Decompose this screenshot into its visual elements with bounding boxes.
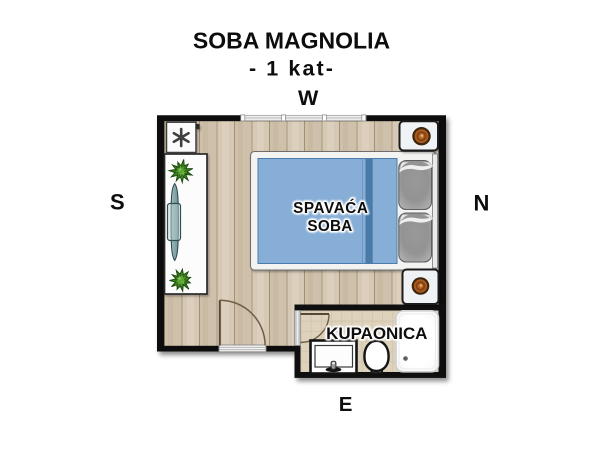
- svg-text:S: S: [110, 190, 125, 215]
- svg-text:SOBA: SOBA: [307, 218, 352, 235]
- svg-text:N: N: [473, 191, 489, 216]
- svg-text:KUPAONICA: KUPAONICA: [326, 324, 427, 343]
- svg-text:SOBA MAGNOLIA: SOBA MAGNOLIA: [193, 27, 390, 53]
- svg-text:SPAVAĆA: SPAVAĆA: [293, 199, 368, 217]
- svg-text:- 1 kat-: - 1 kat-: [249, 57, 335, 81]
- svg-text:E: E: [339, 393, 353, 416]
- svg-text:W: W: [298, 86, 319, 110]
